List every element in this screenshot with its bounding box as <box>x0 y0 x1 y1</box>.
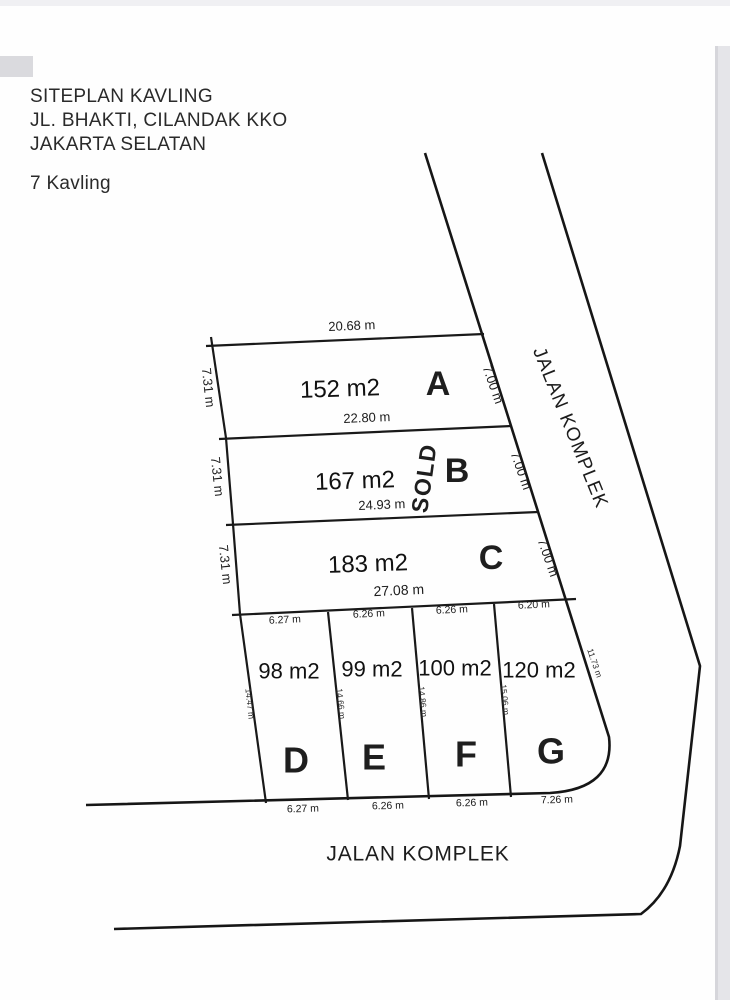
dim-e-bottom: 6.26 m <box>372 800 405 813</box>
dim-c-right: 7.00 m <box>535 536 562 578</box>
dim-e-left: 14.66 m <box>334 688 347 720</box>
plot-letter-g: G <box>537 731 565 772</box>
siteplan-page: SITEPLAN KAVLING JL. BHAKTI, CILANDAK KK… <box>0 0 730 1000</box>
dim-f-top: 6.26 m <box>436 603 469 616</box>
dim-c-left: 7.31 m <box>216 544 235 585</box>
plot-b-area: 167 m2 <box>315 466 396 496</box>
dim-d-left: 14.47 m <box>243 688 256 720</box>
dim-a-right: 7.00 m <box>480 363 507 405</box>
dim-c-bottom: 27.08 m <box>373 581 424 599</box>
photo-right-edge-shadow <box>715 46 718 1000</box>
plot-c-area: 183 m2 <box>328 549 409 579</box>
plot-a-top-edge <box>206 334 484 346</box>
dim-e-top: 6.26 m <box>353 607 386 620</box>
dim-c-top: 24.93 m <box>358 496 406 513</box>
plot-g-area: 120 m2 <box>502 658 575 683</box>
dim-b-left: 7.31 m <box>208 456 227 497</box>
plot-letter-a: A <box>426 365 451 403</box>
plot-letter-e: E <box>362 737 386 778</box>
dim-b-top: 22.80 m <box>343 409 391 426</box>
title-line-1: SITEPLAN KAVLING <box>30 86 213 107</box>
dim-b-right: 7.00 m <box>508 449 535 491</box>
dim-g-bottom: 7.26 m <box>541 794 574 807</box>
dim-d-top: 6.27 m <box>269 613 302 626</box>
road-bottom-label: JALAN KOMPLEK <box>326 843 509 866</box>
dim-f-bottom: 6.26 m <box>456 797 489 810</box>
road-outer-boundary <box>114 153 700 929</box>
photo-right-band <box>718 46 730 1000</box>
plot-letter-f: F <box>455 734 477 775</box>
plot-letter-b: B <box>445 452 470 490</box>
dim-g-top: 6.20 m <box>518 598 551 611</box>
plot-letter-c: C <box>479 539 504 577</box>
dim-f-left: 14.86 m <box>416 686 429 718</box>
plot-a-area: 152 m2 <box>300 374 381 404</box>
plot-b-sold-badge: SOLD <box>406 442 441 515</box>
dim-g-left: 15.06 m <box>498 684 511 716</box>
road-right-label: JALAN KOMPLEK <box>528 344 612 511</box>
plot-letter-d: D <box>283 740 309 781</box>
dim-a-left: 7.31 m <box>199 367 218 408</box>
kavling-count-label: 7 Kavling <box>30 173 111 194</box>
dim-a-top: 20.68 m <box>328 317 376 334</box>
siteplan-drawing: SITEPLAN KAVLING JL. BHAKTI, CILANDAK KK… <box>0 0 730 1000</box>
photo-topleft-mark <box>0 56 33 77</box>
plot-b-c-divider <box>226 512 538 525</box>
plot-f-area: 100 m2 <box>418 656 491 681</box>
plot-d-area: 98 m2 <box>258 659 319 684</box>
plot-e-area: 99 m2 <box>341 657 402 682</box>
plot-a-b-divider <box>219 426 511 439</box>
title-line-2: JL. BHAKTI, CILANDAK KKO <box>30 110 287 131</box>
title-line-3: JAKARTA SELATAN <box>30 134 206 155</box>
dim-d-bottom: 6.27 m <box>287 803 320 816</box>
photo-top-edge <box>0 0 730 6</box>
